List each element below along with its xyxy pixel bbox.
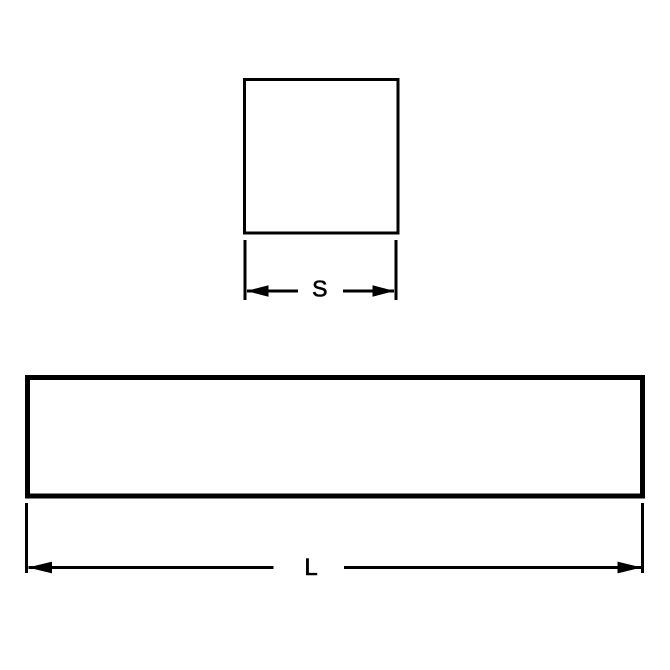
svg-text:L: L [304,554,317,581]
svg-text:S: S [312,276,327,302]
